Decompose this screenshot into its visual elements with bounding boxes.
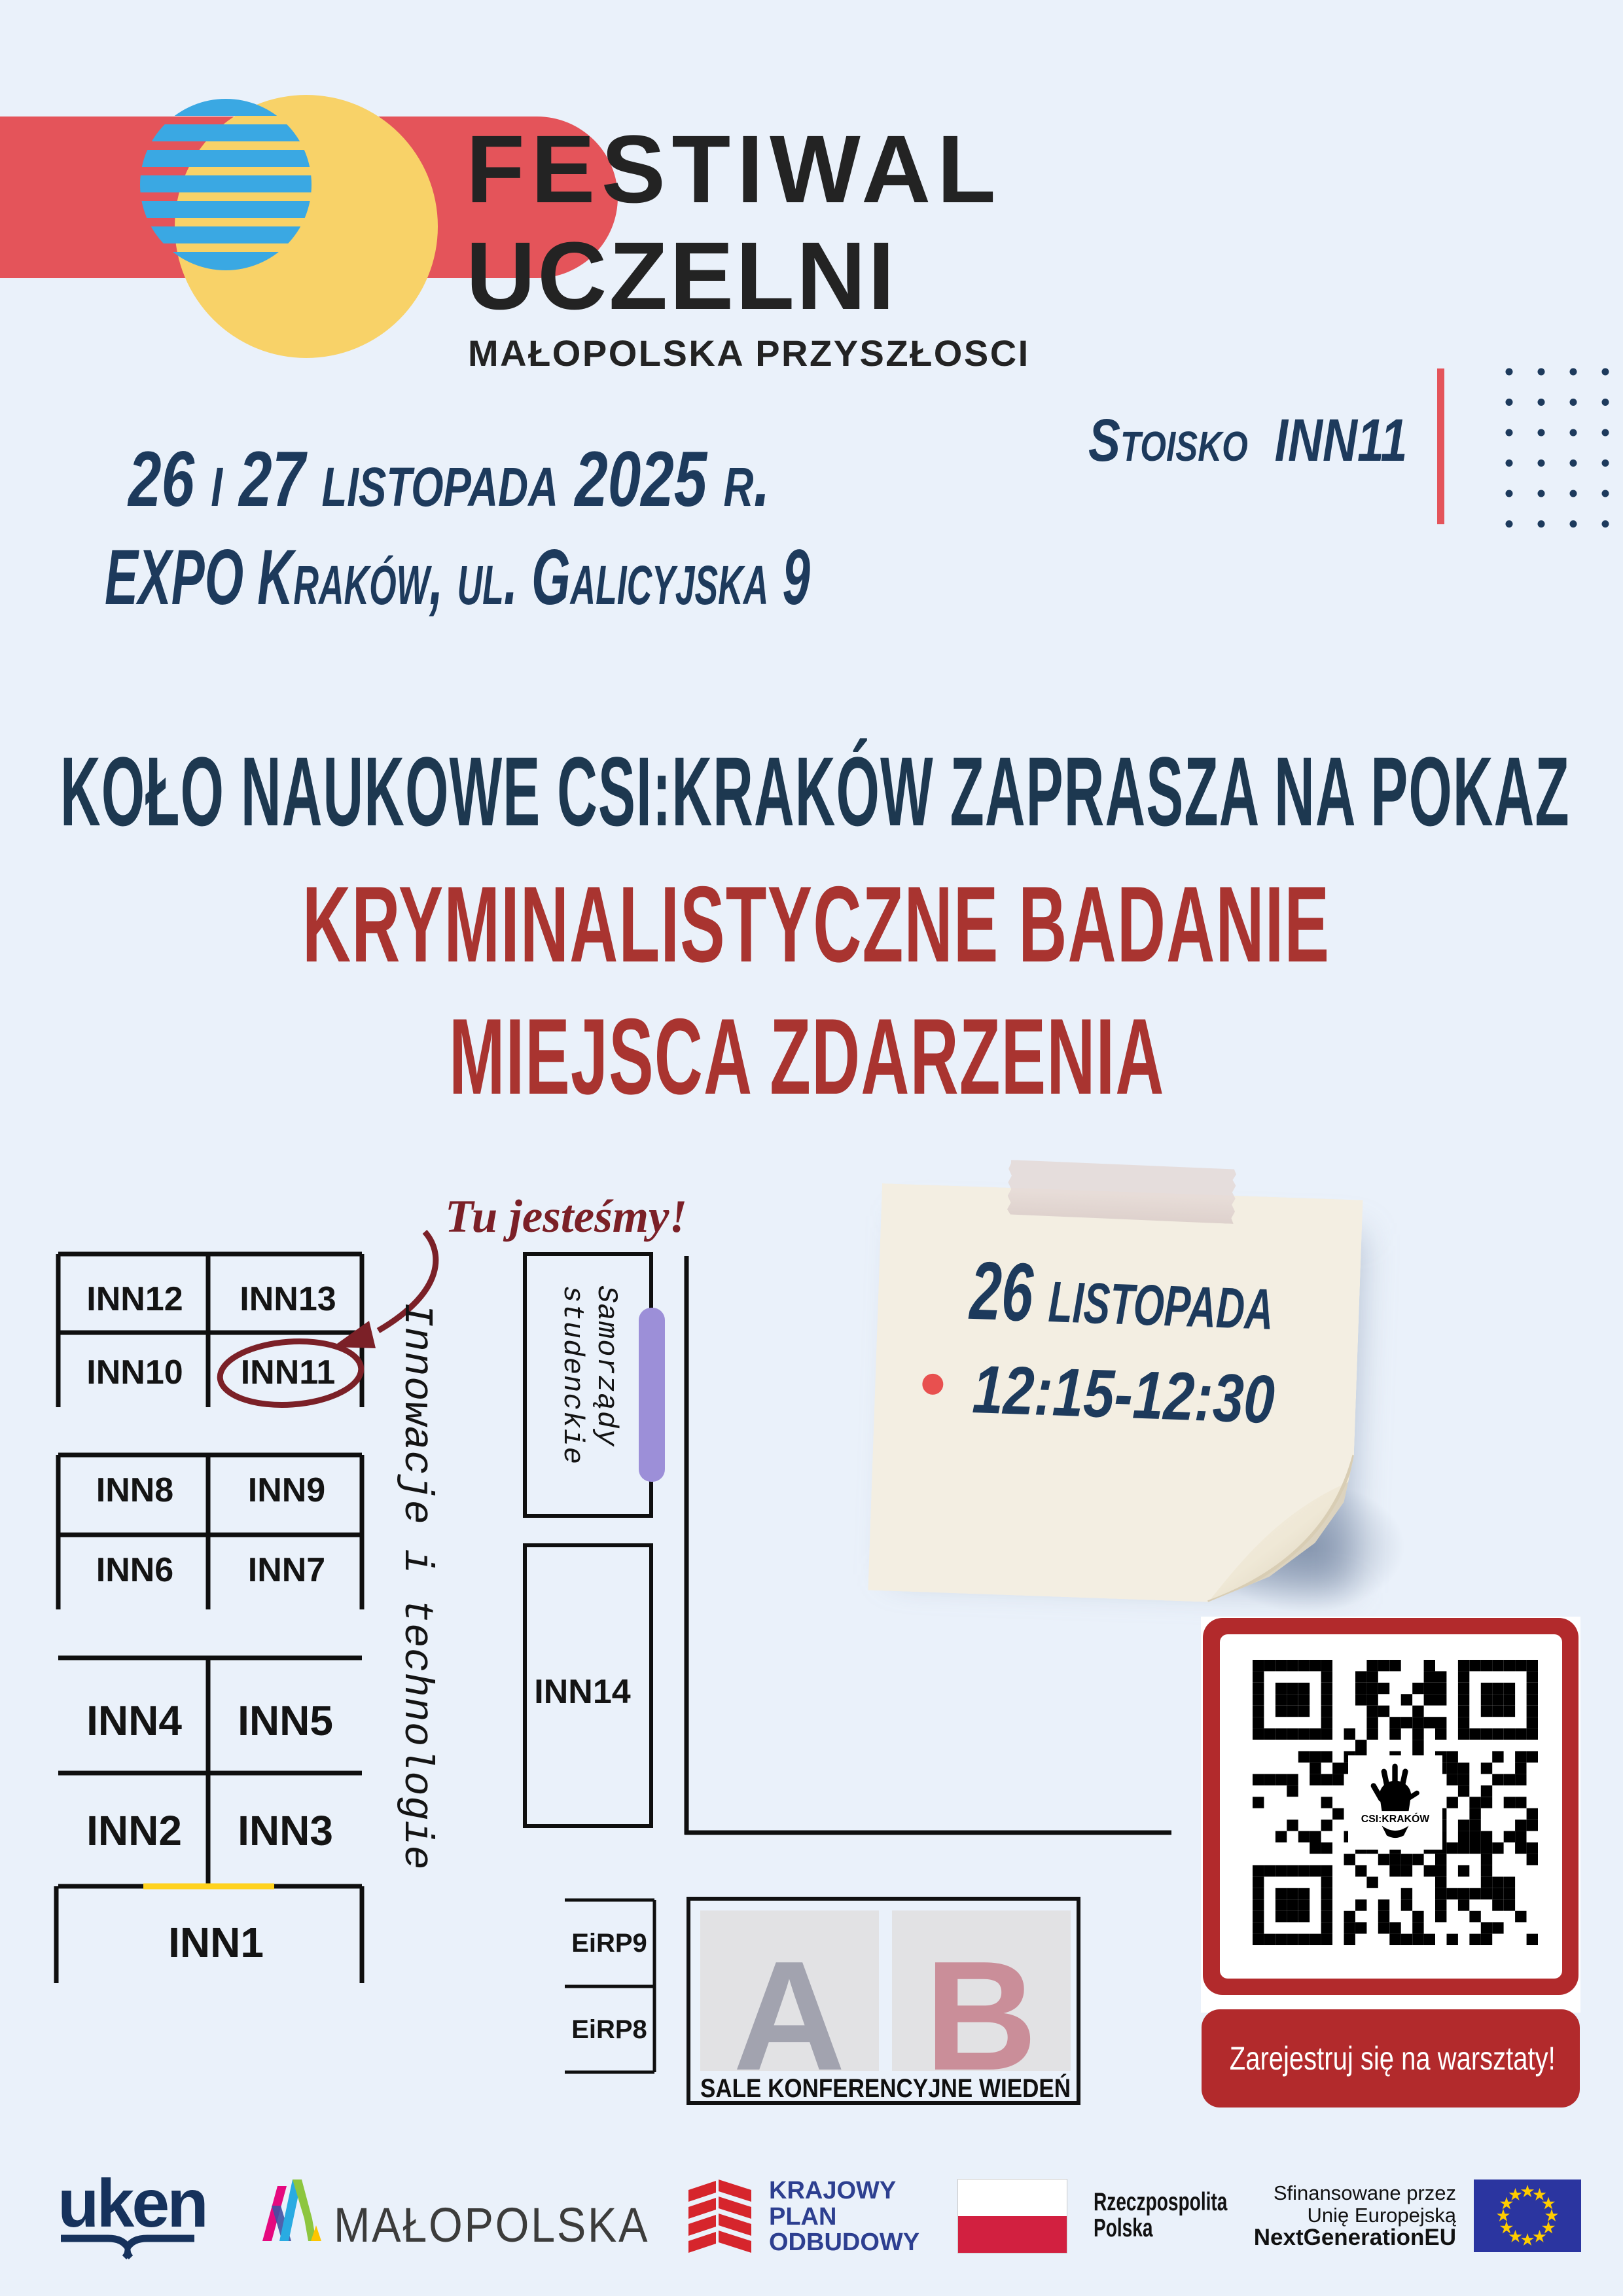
svg-text:INN4: INN4 (86, 1697, 182, 1744)
svg-text:INN14: INN14 (534, 1673, 630, 1711)
svg-text:INN1: INN1 (168, 1919, 264, 1966)
svg-text:INN8: INN8 (96, 1471, 173, 1509)
svg-text:INN10: INN10 (86, 1354, 183, 1391)
svg-text:uken: uken (58, 2173, 206, 2242)
svg-text:INN3: INN3 (238, 1807, 333, 1854)
svg-text:EiRP9: EiRP9 (571, 1929, 647, 1958)
svg-text:SALE KONFERENCYJNE WIEDEŃ: SALE KONFERENCYJNE WIEDEŃ (700, 2073, 1071, 2103)
svg-text:INN9: INN9 (248, 1471, 325, 1509)
svg-text:INN12: INN12 (86, 1280, 183, 1318)
svg-text:INN7: INN7 (248, 1551, 325, 1589)
svg-text:CSI:KRAKÓW: CSI:KRAKÓW (1361, 1812, 1430, 1825)
svg-text:INN2: INN2 (86, 1807, 182, 1854)
svg-text:INN13: INN13 (240, 1280, 336, 1318)
svg-text:INN11: INN11 (241, 1354, 336, 1391)
svg-text:EiRP8: EiRP8 (571, 2015, 647, 2044)
svg-text:INN6: INN6 (96, 1551, 173, 1589)
svg-text:INN5: INN5 (238, 1697, 333, 1744)
